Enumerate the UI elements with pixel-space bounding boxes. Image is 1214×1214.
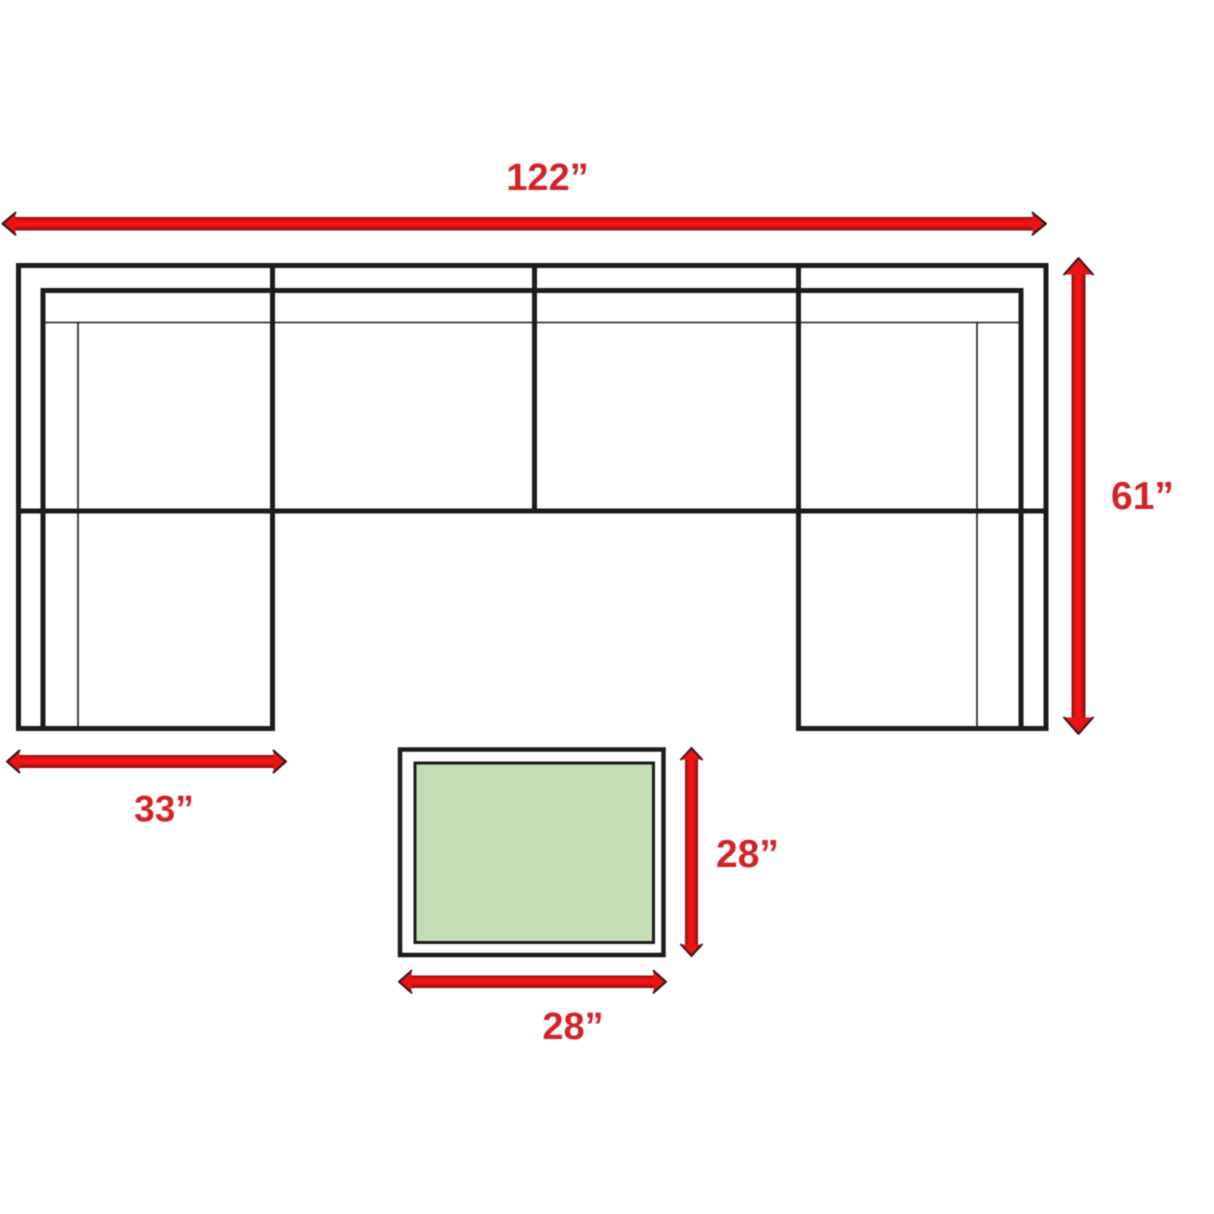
svg-text:33”: 33” [134,789,194,830]
svg-text:28”: 28” [542,1006,603,1048]
svg-text:122”: 122” [506,157,588,199]
svg-text:28”: 28” [716,833,779,876]
svg-text:61”: 61” [1111,475,1174,518]
